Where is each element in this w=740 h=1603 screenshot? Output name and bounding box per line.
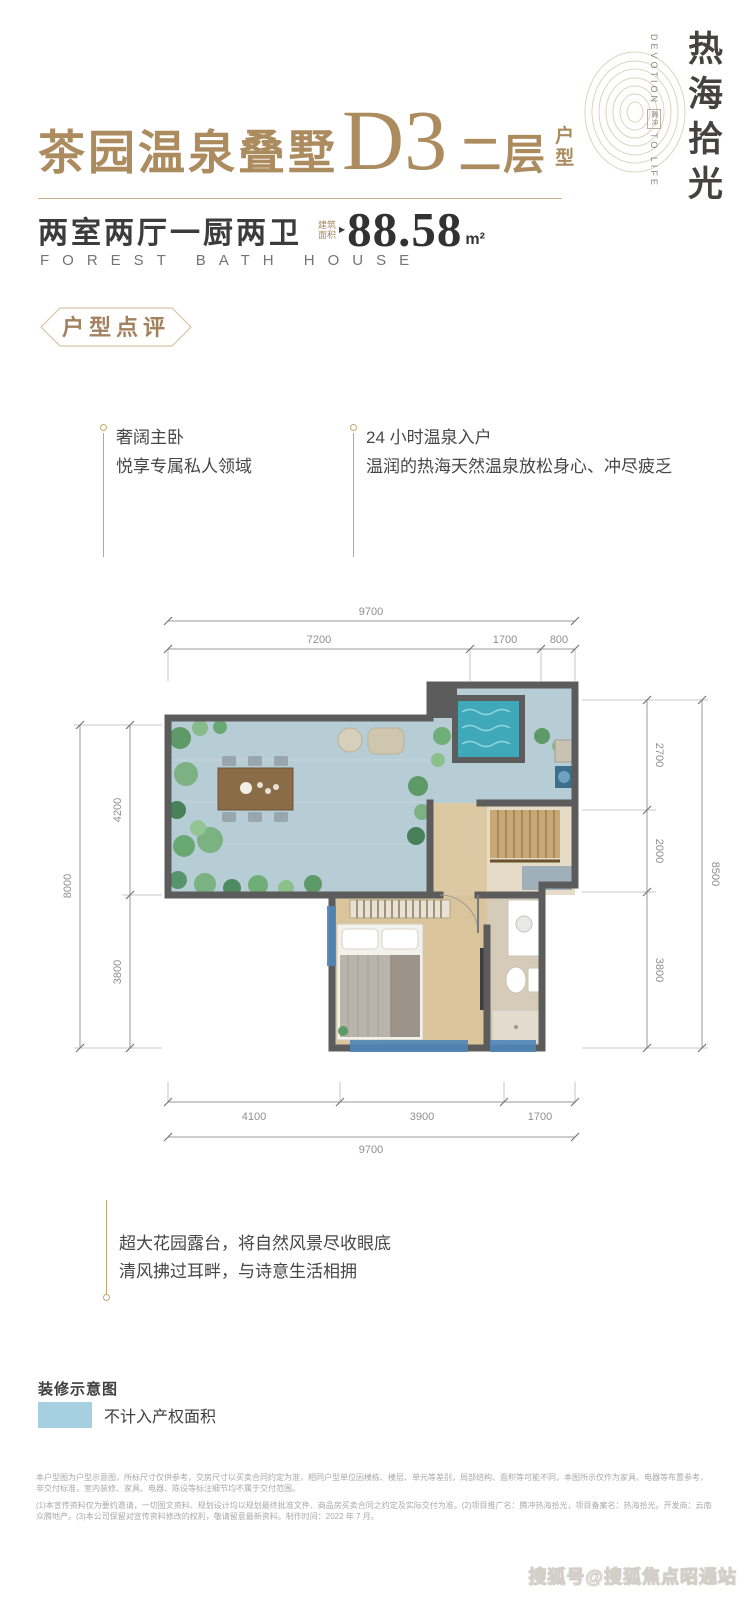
dim-left-seg2: 3800 [112, 960, 124, 984]
page-title: 茶园温泉叠墅 D3 二层 户型 [38, 100, 577, 183]
disclaimer-paragraph-1: 本户型图为户型示意图，所标尺寸仅供参考，交房尺寸以买卖合同约定为准，相同户型单位… [36, 1472, 712, 1494]
sohu-watermark: 搜狐号@搜狐焦点昭通站 [527, 1563, 737, 1589]
title-unit-code: D3 [342, 100, 447, 182]
flyer-page: 茶园温泉叠墅 D3 二层 户型 两室两厅一厨两卫 建筑面积 ▶ 88.58 m²… [0, 0, 740, 1603]
terrace-note: 超大花园露台，将自然风景尽收眼底 清风拂过耳畔，与诗意生活相拥 [103, 1200, 391, 1286]
room-config: 两室两厅一厨两卫 [38, 208, 302, 252]
badge-label: 户型点评 [62, 315, 170, 340]
callout-dot-icon [350, 424, 357, 431]
dim-top-seg1: 7200 [307, 634, 331, 646]
title-floor-suffix: 户型 [555, 126, 577, 170]
dimension-left: 4200 3800 8000 [62, 721, 162, 1052]
note-dot-icon [103, 1294, 110, 1301]
dim-right-seg2: 2000 [653, 839, 665, 863]
lounge-set [338, 728, 404, 754]
logo-en-bottom: TO LIFE [649, 133, 659, 188]
callout-line [103, 433, 104, 557]
note-line [106, 1200, 107, 1294]
wardrobe [350, 900, 450, 918]
legend-row: 不计入产权面积 [38, 1402, 216, 1428]
floor-plan: 9700 7200 1700 800 4200 3800 8000 [50, 588, 730, 1168]
dim-right-seg3: 3800 [653, 958, 665, 982]
arrow-icon: ▶ [339, 225, 345, 234]
title-floor: 二层 [459, 121, 547, 182]
dim-bottom-seg2: 3900 [410, 1111, 434, 1123]
logo-english: DEVOTION 腾冲 TO LIFE [647, 34, 661, 206]
title-main: 茶园温泉叠墅 [38, 114, 338, 183]
callout-dot-icon [100, 424, 107, 431]
logo-chinese: 热海拾光 [677, 30, 728, 226]
callout-desc: 温润的热海天然温泉放松身心、冲尽疲乏 [366, 453, 672, 480]
dim-top-seg2: 1700 [493, 634, 517, 646]
concentric-rings-icon [583, 44, 691, 184]
dim-bottom-seg3: 1700 [528, 1111, 552, 1123]
dim-right-total: 8500 [709, 862, 721, 886]
logo-en-top: DEVOTION [649, 34, 659, 105]
plunge-pool [455, 698, 522, 760]
callout-desc: 悦享专属私人领域 [116, 453, 252, 480]
dimension-right: 2700 2000 3800 8500 [582, 696, 721, 1052]
dim-bottom-seg1: 4100 [242, 1111, 266, 1123]
bed [337, 924, 423, 1040]
title-divider [38, 198, 562, 199]
legend-blue-swatch [38, 1402, 92, 1428]
dim-top-seg3: 800 [550, 634, 568, 646]
callout-hot-spring: 24 小时温泉入户 温润的热海天然温泉放松身心、冲尽疲乏 [350, 424, 672, 480]
legend-title: 装修示意图 [38, 1378, 118, 1399]
dining-set [218, 756, 293, 822]
disclaimer-paragraph-2: (1)本宣传资料仅为要约邀请，一切图文资料、规划设计均以规划最终批准文件、商品房… [36, 1500, 712, 1522]
section-badge: 户型点评 [40, 307, 192, 347]
hallway-wood-floor [430, 803, 487, 895]
callout-title: 奢阔主卧 [116, 424, 252, 451]
dim-bottom-total: 9700 [359, 1144, 383, 1156]
logo-en-mid: 腾冲 [647, 109, 661, 129]
dimension-top: 9700 7200 1700 800 [164, 606, 579, 681]
dim-left-total: 8000 [62, 874, 74, 898]
callout-line [353, 433, 354, 557]
callout-title: 24 小时温泉入户 [366, 424, 672, 451]
dimension-bottom: 4100 3900 1700 9700 [164, 1082, 579, 1156]
dim-left-seg1: 4200 [112, 798, 124, 822]
callout-master-bedroom: 奢阔主卧 悦享专属私人领域 [100, 424, 252, 480]
subtitle-english: FOREST BATH HOUSE [40, 252, 422, 269]
note-line2: 清风拂过耳畔，与诗意生活相拥 [119, 1258, 391, 1286]
dim-right-seg1: 2700 [653, 743, 665, 767]
area-label: 建筑面积 [318, 220, 338, 240]
subtitle: 两室两厅一厨两卫 建筑面积 ▶ 88.58 m² [38, 205, 485, 254]
dim-top-total: 9700 [359, 606, 383, 618]
brand-logo: DEVOTION 腾冲 TO LIFE 热海拾光 [583, 30, 733, 210]
note-line1: 超大花园露台，将自然风景尽收眼底 [119, 1230, 391, 1258]
legend-item-label: 不计入产权面积 [104, 1403, 216, 1427]
area-unit: m² [465, 231, 485, 249]
area-value: 88.58 [347, 205, 462, 254]
